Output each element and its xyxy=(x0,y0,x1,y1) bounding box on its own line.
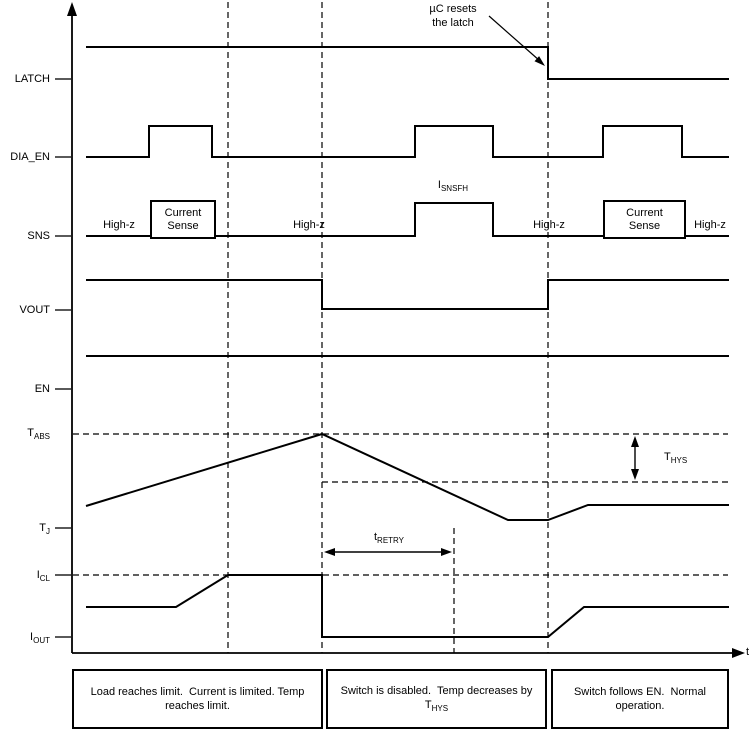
t-retry-arrowhead-left-icon xyxy=(324,548,335,556)
phase-box-2-line1: Switch is disabled. Temp decreases by xyxy=(341,684,533,698)
phase-box-3-line2: operation. xyxy=(616,699,665,713)
phase-box-1-line2: reaches limit. xyxy=(165,699,230,713)
current-sense-2-line2: Sense xyxy=(629,220,660,233)
t-hys-arrowhead-down-icon xyxy=(631,469,639,480)
phase-box-1: Load reaches limit. Current is limited. … xyxy=(72,669,323,729)
dia-en-waveform xyxy=(86,126,729,157)
i-out-label: IOUT xyxy=(0,631,50,645)
uc-reset-arrow xyxy=(489,16,545,66)
t-retry-label: tRETRY xyxy=(374,531,404,545)
time-axis-label: t xyxy=(746,646,749,658)
current-sense-1-line2: Sense xyxy=(167,220,198,233)
high-z-label-2: High-z xyxy=(293,219,325,231)
current-sense-box-2: Current Sense xyxy=(603,200,686,239)
current-sense-2-line1: Current xyxy=(626,207,663,220)
phase-box-3: Switch follows EN. Normal operation. xyxy=(551,669,729,729)
current-sense-box-1: Current Sense xyxy=(150,200,216,239)
uc-reset-arrow-line xyxy=(489,16,540,61)
high-z-label-1: High-z xyxy=(103,219,135,231)
t-retry-arrowhead-right-icon xyxy=(441,548,452,556)
phase-box-2-line2: THYS xyxy=(425,698,448,713)
latch-label: LATCH xyxy=(0,73,50,85)
current-sense-1-line1: Current xyxy=(165,207,202,220)
sns-label: SNS xyxy=(0,230,50,242)
high-z-label-3: High-z xyxy=(533,219,565,231)
time-axis-arrow-icon xyxy=(732,648,745,658)
uc-resets-line2: the latch xyxy=(432,17,474,29)
high-z-label-4: High-z xyxy=(694,219,726,231)
uc-resets-line1: µC resets xyxy=(429,3,476,15)
y-axis-arrow-icon xyxy=(67,2,77,16)
phase-box-2: Switch is disabled. Temp decreases by TH… xyxy=(326,669,547,729)
t-hys-arrow xyxy=(631,436,639,480)
phase-box-1-line1: Load reaches limit. Current is limited. … xyxy=(91,685,305,699)
axes xyxy=(72,13,734,653)
t-abs-label: TABS xyxy=(0,427,50,441)
t-j-label: TJ xyxy=(0,522,50,536)
vout-label: VOUT xyxy=(0,304,50,316)
t-retry-arrow xyxy=(324,548,452,556)
en-label: EN xyxy=(0,383,50,395)
dashed-event-lines xyxy=(228,2,548,653)
i-snsfh-label: ISNSFH xyxy=(438,179,468,193)
waveforms xyxy=(86,47,729,637)
signal-ticks xyxy=(55,79,71,637)
i-cl-label: ICL xyxy=(0,569,50,583)
vout-waveform xyxy=(86,280,729,309)
phase-box-3-line1: Switch follows EN. Normal xyxy=(574,685,706,699)
timing-diagram: LATCH DIA_EN SNS VOUT EN TABS TJ ICL IOU… xyxy=(0,0,754,734)
latch-waveform xyxy=(86,47,729,79)
t-hys-arrowhead-up-icon xyxy=(631,436,639,447)
t-hys-label: THYS xyxy=(664,451,687,465)
diagram-canvas xyxy=(0,0,754,734)
current-waveform xyxy=(86,575,729,637)
dia-en-label: DIA_EN xyxy=(0,151,50,163)
